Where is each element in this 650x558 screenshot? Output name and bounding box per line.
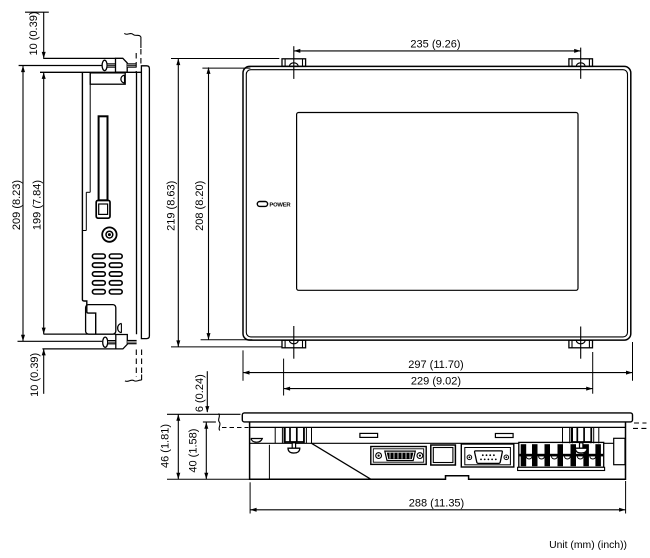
svg-text:209 (8.23): 209 (8.23): [11, 180, 23, 230]
svg-text:Unit (mm) (inch)): Unit (mm) (inch)): [549, 540, 627, 551]
svg-text:46 (1.81): 46 (1.81): [160, 424, 172, 468]
svg-text:229 (9.02): 229 (9.02): [411, 376, 461, 388]
svg-text:208 (8.20): 208 (8.20): [194, 181, 206, 231]
svg-text:6 (0.24): 6 (0.24): [194, 374, 206, 412]
svg-text:235 (9.26): 235 (9.26): [410, 38, 460, 50]
svg-text:297 (11.70): 297 (11.70): [408, 359, 463, 371]
svg-text:10 (0.39): 10 (0.39): [29, 353, 41, 397]
svg-text:199 (7.84): 199 (7.84): [32, 180, 44, 230]
svg-text:10 (0.39): 10 (0.39): [28, 11, 40, 55]
svg-text:219 (8.63): 219 (8.63): [165, 181, 177, 231]
svg-text:POWER: POWER: [269, 203, 291, 209]
svg-text:40 (1.58): 40 (1.58): [188, 429, 200, 473]
svg-text:288 (11.35): 288 (11.35): [409, 498, 464, 510]
